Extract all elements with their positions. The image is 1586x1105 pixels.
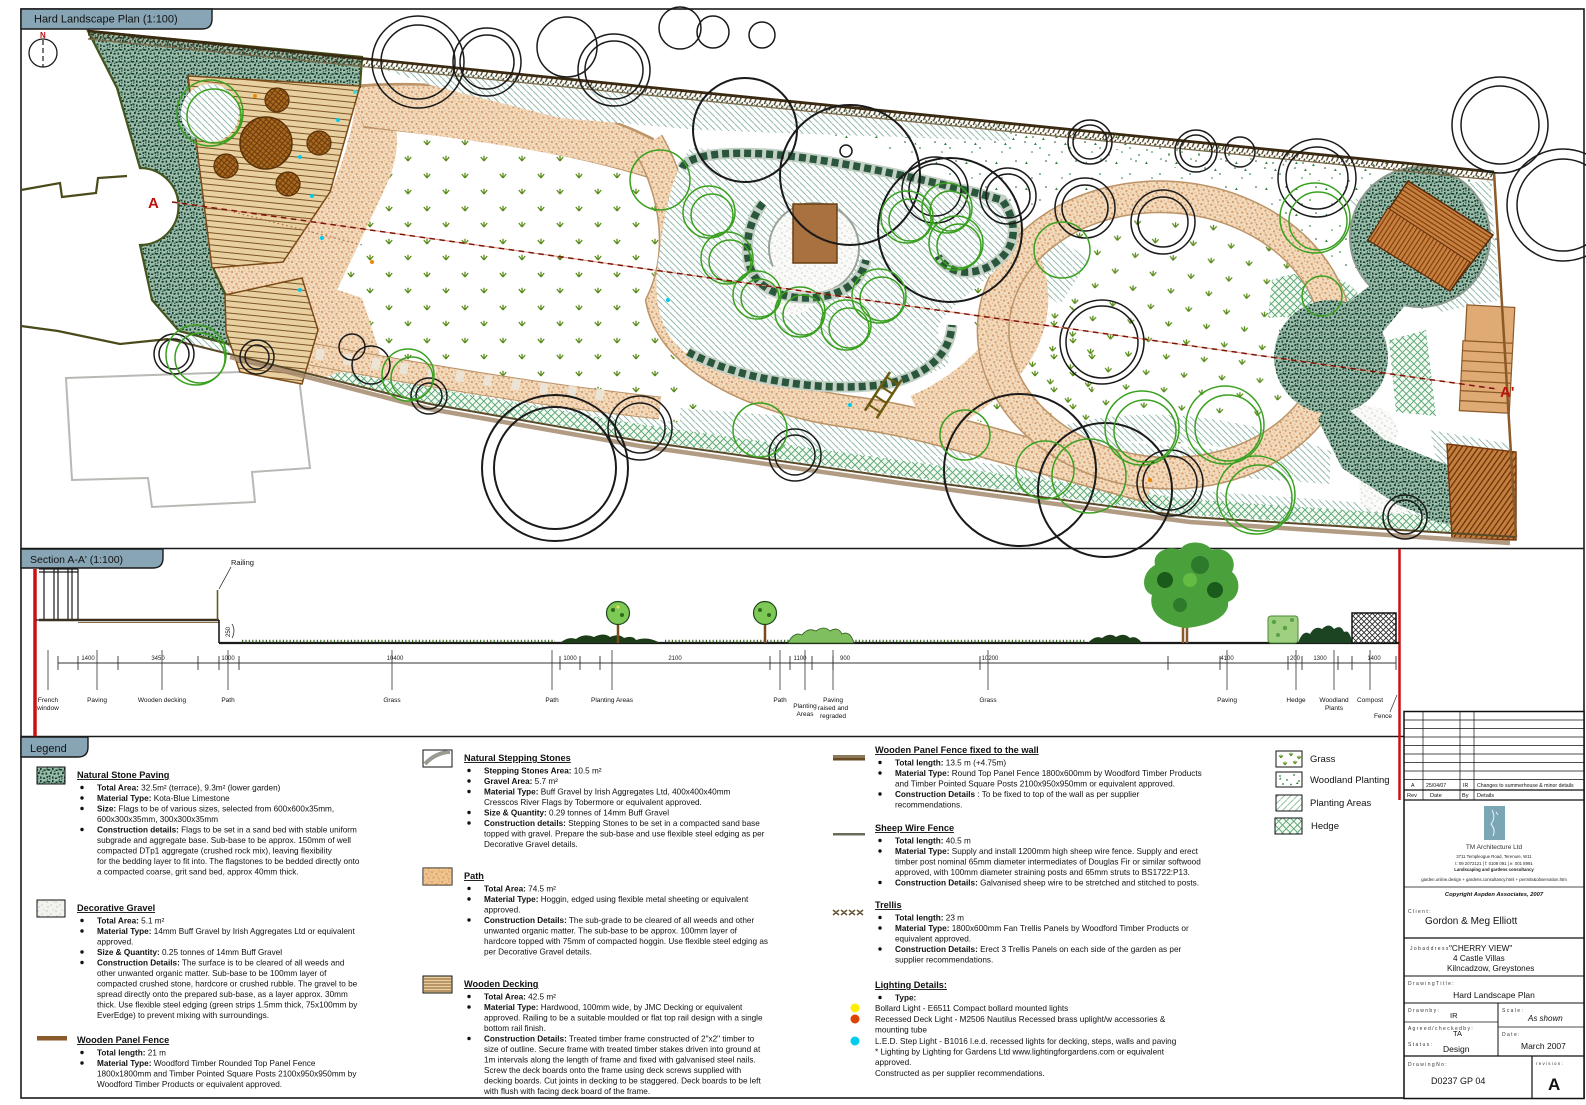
svg-text:other unwanted organic matter.: other unwanted organic matter. Sub-base … [97, 969, 327, 978]
svg-text:thick. Use flexible steel edgi: thick. Use flexible steel edging (green … [97, 1001, 358, 1010]
svg-text:per Decorative Gravel details.: per Decorative Gravel details. [484, 948, 592, 957]
svg-text:10400: 10400 [387, 656, 404, 662]
svg-text:Woodford Timber Products or eq: Woodford Timber Products or equivalent a… [97, 1080, 282, 1089]
svg-text:Construction Details: The sur: Construction Details: The surface is to … [97, 959, 345, 968]
svg-text:1400: 1400 [1367, 656, 1381, 662]
svg-text:decking boards. Cut joints in: decking boards. Cut joints in decking to… [484, 1077, 761, 1086]
svg-text:TA: TA [1453, 1029, 1462, 1038]
svg-text:1400: 1400 [81, 656, 95, 662]
svg-text:Wooden Decking: Wooden Decking [464, 979, 538, 989]
svg-text:C l i e n t :: C l i e n t : [1408, 909, 1431, 915]
svg-text:supplier recommendations.: supplier recommendations. [895, 956, 993, 965]
svg-text:Total Area: 42.5 m²: Total Area: 42.5 m² [484, 993, 556, 1002]
svg-text:Bollard Light - E6511 Compact: Bollard Light - E6511 Compact bollard mo… [875, 1004, 1068, 1013]
svg-text:March 2007: March 2007 [1521, 1041, 1566, 1051]
svg-text:Material Type: Round Top Pane: Material Type: Round Top Panel Fence 180… [895, 769, 1202, 778]
svg-text:unwanted organic matter. The s: unwanted organic matter. The sub-base to… [484, 927, 738, 936]
svg-text:mounting tube: mounting tube [875, 1026, 927, 1035]
svg-text:* Lighting by Lighting for Gar: * Lighting by Lighting for Gardens Ltd w… [875, 1048, 1165, 1057]
svg-text:4 Castle Villas: 4 Castle Villas [1453, 954, 1505, 963]
svg-text:Total Area: 74.5 m²: Total Area: 74.5 m² [484, 885, 556, 894]
svg-text:Total Area: 32.5m² (terrace),: Total Area: 32.5m² (terrace), 9.3m² (low… [97, 784, 281, 793]
svg-text:compacted crushed stone, hardc: compacted crushed stone, hardcore or cru… [97, 980, 358, 989]
svg-text:with flush with facing deck bo: with flush with facing deck board of the… [483, 1087, 650, 1096]
svg-text:Design: Design [1443, 1044, 1470, 1054]
svg-text:Size & Quantity: 0.25 tonnes o: Size & Quantity: 0.25 tonnes of 14mm Buf… [97, 948, 282, 957]
svg-text:3711 Templeogue Road, Terenur: 3711 Templeogue Road, Terenure, W11 [1456, 854, 1532, 859]
svg-text:IR: IR [1450, 1011, 1458, 1020]
svg-text:Construction details: Flags t: Construction details: Flags to be set in… [97, 826, 357, 835]
svg-text:1800x1800mm and Timber Pointed: 1800x1800mm and Timber Pointed Square Po… [97, 1070, 357, 1079]
svg-text:timber post nominal 65mm diam: timber post nominal 65mm diameter interm… [895, 858, 1201, 867]
svg-text:Material Type: Woodford Timber: Material Type: Woodford Timber Rounded T… [97, 1059, 316, 1068]
svg-text:D r a w i n g T i t l e :: D r a w i n g T i t l e : [1408, 981, 1454, 987]
svg-text:A g r e e d / c h e c k e d: A g r e e d / c h e c k e d b y : [1408, 1026, 1473, 1032]
svg-text:t: 09 2072121 | f: 0108 091: t: 09 2072121 | f: 0108 091 | e: 001 899… [1455, 861, 1533, 866]
svg-text:Copyright Aspden Associates, 2: Copyright Aspden Associates, 2007 [1445, 892, 1544, 898]
svg-text:D a t e :: D a t e : [1502, 1032, 1520, 1038]
svg-text:N: N [40, 31, 46, 40]
svg-text:2100: 2100 [668, 656, 682, 662]
svg-text:approved.: approved. [484, 906, 520, 915]
svg-text:Hard Landscape Plan: Hard Landscape Plan [1453, 990, 1535, 1000]
svg-text:Stepping Stones Area: 10.5 m²: Stepping Stones Area: 10.5 m² [484, 767, 602, 776]
svg-text:Size & Quantity: 0.29 tonnes o: Size & Quantity: 0.29 tonnes of 14mm Buf… [484, 809, 669, 818]
svg-text:Path: Path [773, 697, 787, 704]
svg-text:Grass: Grass [383, 697, 401, 704]
svg-text:J o b a d d r e s s :: J o b a d d r e s s : [1410, 946, 1451, 952]
svg-text:size of outline. Secure frame: size of outline. Secure frame with treat… [484, 1045, 761, 1054]
svg-text:approved.: approved. [875, 1058, 911, 1067]
svg-text:Woodland Planting: Woodland Planting [1310, 775, 1390, 786]
svg-text:Screw the deck boards onto the: Screw the deck boards onto the frame usi… [484, 1066, 742, 1075]
svg-text:a compacted coarse, grit sand: a compacted coarse, grit sand bed, appro… [97, 868, 299, 877]
svg-text:Type:: Type: [895, 994, 916, 1003]
svg-text:1m intervals along the length: 1m intervals along the length of frame a… [484, 1056, 756, 1065]
svg-text:Constructed as per supplier re: Constructed as per supplier recommendati… [875, 1069, 1045, 1078]
svg-text:Wooden Panel Fence: Wooden Panel Fence [77, 1035, 169, 1045]
svg-text:Construction details: Steppin: Construction details: Stepping Stones to… [484, 819, 760, 828]
svg-text:Kilncadzow, Greystones: Kilncadzow, Greystones [1447, 964, 1534, 973]
svg-text:approved.: approved. [97, 938, 133, 947]
svg-text:Hard Landscape Plan (1:100): Hard Landscape Plan (1:100) [34, 14, 178, 26]
svg-text:hardcore topped with 75mm of c: hardcore topped with 75mm of compacted h… [484, 937, 768, 946]
svg-text:S c a l e :: S c a l e : [1502, 1008, 1523, 1014]
svg-text:L.E.D. Step Light - B1016 l.e: L.E.D. Step Light - B1016 l.e.d. recesse… [875, 1037, 1177, 1046]
svg-text:equivalent approved.: equivalent approved. [895, 935, 971, 944]
svg-text:3450: 3450 [151, 656, 165, 662]
svg-text:Total length: 23 m: Total length: 23 m [895, 914, 964, 923]
svg-text:1300: 1300 [1313, 656, 1327, 662]
svg-text:Construction Details: Galvani: Construction Details: Galvanised sheep w… [895, 879, 1199, 888]
svg-text:Material Type: Hardwood, 100m: Material Type: Hardwood, 100mm wide, by … [484, 1003, 743, 1012]
svg-text:Hedge: Hedge [1311, 821, 1339, 832]
svg-text:Gordon & Meg Elliott: Gordon & Meg Elliott [1425, 916, 1517, 927]
svg-text:Material Type: 1800x600mm Fan: Material Type: 1800x600mm Fan Trellis Pa… [895, 924, 1189, 933]
svg-text:Total length: 40.5 m: Total length: 40.5 m [895, 837, 971, 846]
svg-text:IR: IR [1463, 783, 1468, 789]
svg-text:Construction Details: Erect 3: Construction Details: Erect 3 Trellis Pa… [895, 945, 1182, 954]
svg-text:Decorative Gravel: Decorative Gravel [77, 903, 155, 913]
svg-text:"CHERRY VIEW": "CHERRY VIEW" [1449, 944, 1512, 953]
svg-text:Natural Stepping Stones: Natural Stepping Stones [464, 753, 571, 763]
svg-text:Total length: 21 m: Total length: 21 m [97, 1049, 166, 1058]
svg-text:subgrade and aggregate base. S: subgrade and aggregate base. Sub-base to… [97, 836, 351, 845]
svg-text:Total length: 13.5 m (+4.75m): Total length: 13.5 m (+4.75m) [895, 759, 1006, 768]
svg-text:for the bedding layer to fit i: for the bedding layer to fit into. The f… [97, 857, 360, 866]
svg-text:Path: Path [464, 871, 484, 881]
svg-text:Path: Path [221, 697, 235, 704]
svg-text:Paving: Paving [87, 697, 107, 704]
svg-text:Frenchwindow: Frenchwindow [36, 697, 59, 712]
svg-text:Grass: Grass [1310, 754, 1336, 765]
svg-text:Section A-A' (1:100): Section A-A' (1:100) [30, 554, 123, 566]
svg-text:Construction Details: Treated: Construction Details: Treated timber fra… [484, 1035, 755, 1044]
svg-text:A: A [1411, 783, 1415, 789]
svg-text:10200: 10200 [982, 656, 999, 662]
svg-text:Fence: Fence [1374, 713, 1392, 720]
svg-text:Legend: Legend [30, 743, 67, 755]
svg-text:Hedge: Hedge [1286, 697, 1306, 704]
svg-text:Rev: Rev [1407, 793, 1417, 799]
svg-text:A: A [1548, 1075, 1560, 1094]
svg-text:Paving: Paving [1217, 697, 1237, 704]
svg-text:Material Type: Hoggin, edged: Material Type: Hoggin, edged using flexi… [484, 895, 749, 904]
svg-text:D r a w i n g N o :: D r a w i n g N o : [1408, 1062, 1447, 1068]
svg-text:Wooden Panel Fence fixed to th: Wooden Panel Fence fixed to the wall [875, 745, 1039, 755]
svg-text:Sheep Wire Fence: Sheep Wire Fence [875, 823, 954, 833]
svg-text:A: A [148, 195, 159, 212]
svg-text:Date: Date [1430, 793, 1442, 799]
svg-text:Total Area: 5.1 m²: Total Area: 5.1 m² [97, 917, 165, 926]
svg-text:Changes to summerhouse & minor: Changes to summerhouse & minor details [1477, 783, 1574, 789]
svg-text:A': A' [1500, 384, 1514, 401]
svg-text:Landscaping and gardens consul: Landscaping and gardens consultancy [1454, 867, 1534, 872]
svg-text:Decorative Gravel details.: Decorative Gravel details. [484, 840, 578, 849]
svg-text:Planting Areas: Planting Areas [1310, 798, 1372, 809]
svg-text:Planting Areas: Planting Areas [591, 697, 634, 704]
svg-text:recommendations.: recommendations. [895, 801, 962, 810]
svg-text:topped with gravel. Prepare th: topped with gravel. Prepare the sub-base… [484, 830, 765, 839]
svg-text:Lighting Details:: Lighting Details: [875, 980, 947, 990]
svg-text:r e v i s i o n :: r e v i s i o n : [1536, 1061, 1563, 1066]
svg-text:1000: 1000 [563, 656, 577, 662]
svg-text:Railing: Railing [231, 558, 254, 567]
svg-text:Construction Details : To be f: Construction Details : To be fixed to to… [895, 790, 1139, 799]
svg-text:Details: Details [1477, 793, 1494, 799]
svg-text:spread directly onto the prepa: spread directly onto the prepared sub-ba… [97, 990, 348, 999]
svg-text:Material Type: Supply and ins: Material Type: Supply and install 1200mm… [895, 847, 1199, 856]
svg-text:Trellis: Trellis [875, 900, 902, 910]
svg-text:250: 250 [226, 626, 232, 637]
svg-text:garden.online.design + gardens: garden.online.design + gardens.consultan… [1421, 877, 1567, 882]
svg-text:200: 200 [1290, 656, 1301, 662]
svg-text:EverEdge) to prevent mixing wi: EverEdge) to prevent mixing with surroun… [97, 1011, 269, 1020]
svg-text:D r a w n b y :: D r a w n b y : [1408, 1008, 1439, 1014]
svg-text:Path: Path [545, 697, 559, 704]
svg-text:Material Type: Kota-Blue Limes: Material Type: Kota-Blue Limestone [97, 794, 230, 803]
svg-text:D0237 GP 04: D0237 GP 04 [1431, 1076, 1485, 1086]
svg-text:Material Type: 14mm Buff Grave: Material Type: 14mm Buff Gravel by Irish… [97, 927, 355, 936]
svg-text:By: By [1462, 793, 1469, 799]
svg-text:25/04/07: 25/04/07 [1426, 783, 1446, 789]
svg-text:Wooden decking: Wooden decking [138, 697, 187, 704]
svg-text:Cresscos River Flags by Tober: Cresscos River Flags by Tobermore or equ… [484, 798, 702, 807]
svg-text:bottom rail finish.: bottom rail finish. [484, 1024, 546, 1033]
svg-text:As shown: As shown [1527, 1014, 1563, 1023]
svg-text:Natural Stone Paving: Natural Stone Paving [77, 770, 169, 780]
svg-text:and Timber Pointed Square Post: and Timber Pointed Square Posts 2100x950… [895, 780, 1175, 789]
svg-text:Compost: Compost [1357, 697, 1383, 704]
svg-text:compacted DTp1 aggregate (crus: compacted DTp1 aggregate (crushed rock m… [97, 847, 333, 856]
svg-text:approved. Railing to be a suit: approved. Railing to be a suitable mould… [484, 1014, 763, 1023]
svg-text:Grass: Grass [979, 697, 997, 704]
svg-text:S t a t u s :: S t a t u s : [1408, 1042, 1432, 1048]
svg-text:Recessed Deck Light - M2506 Na: Recessed Deck Light - M2506 Nautilus Rec… [875, 1015, 1166, 1024]
svg-text:TM Architecture Ltd: TM Architecture Ltd [1466, 844, 1523, 851]
svg-text:approved, with 100mm diameter: approved, with 100mm diameter straining … [895, 868, 1190, 877]
svg-text:Construction Details: The su: Construction Details: The sub-grade to b… [484, 916, 754, 925]
svg-text:900: 900 [840, 656, 851, 662]
svg-text:Gravel Area: 5.7 m²: Gravel Area: 5.7 m² [484, 777, 558, 786]
svg-text:600x300x35mm, 300x300x35mm: 600x300x35mm, 300x300x35mm [97, 815, 218, 824]
svg-text:Size: Flags to be of various s: Size: Flags to be of various sizes, sele… [97, 805, 334, 814]
svg-text:Material Type: Buff Gravel by: Material Type: Buff Gravel by Irish Aggr… [484, 788, 731, 797]
